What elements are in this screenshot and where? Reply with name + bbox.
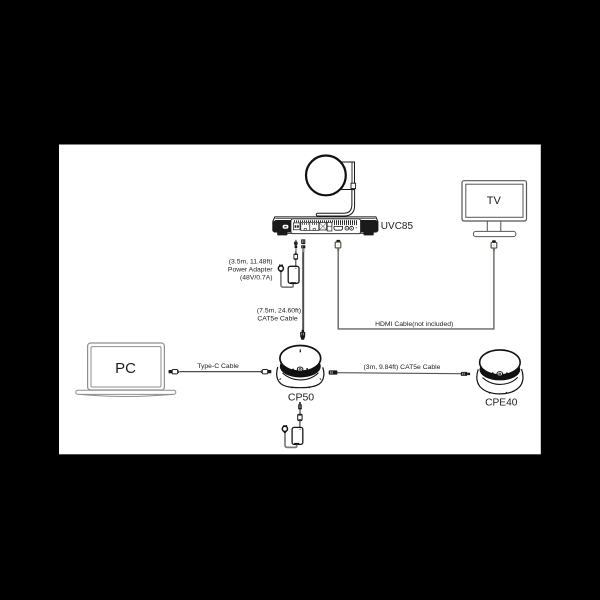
svg-text:HDMI Cable(not included): HDMI Cable(not included) — [375, 321, 453, 328]
svg-text:(48V/0.7A): (48V/0.7A) — [240, 275, 273, 282]
svg-text:(3.5m, 11.48ft): (3.5m, 11.48ft) — [229, 259, 273, 266]
svg-text:PC: PC — [115, 360, 136, 377]
svg-text:UVC85: UVC85 — [381, 221, 414, 232]
svg-text:(7.5m, 24.60ft): (7.5m, 24.60ft) — [257, 307, 301, 314]
svg-text:CP50: CP50 — [288, 391, 314, 403]
svg-text:CAT5e Cable: CAT5e Cable — [257, 315, 298, 322]
svg-text:(3m, 9.84ft) CAT5e Cable: (3m, 9.84ft) CAT5e Cable — [364, 364, 441, 371]
svg-text:Power Adapter: Power Adapter — [228, 267, 273, 274]
svg-text:CPE40: CPE40 — [485, 397, 518, 408]
svg-text:TV: TV — [487, 195, 502, 207]
svg-text:Type-C Cable: Type-C Cable — [197, 363, 239, 370]
